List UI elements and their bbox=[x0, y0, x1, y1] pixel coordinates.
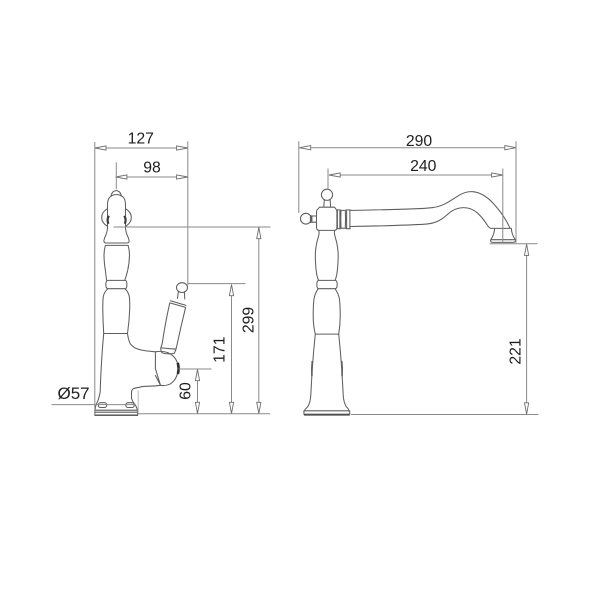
svg-text:290: 290 bbox=[406, 133, 433, 150]
svg-text:Ø57: Ø57 bbox=[58, 384, 90, 403]
svg-text:299: 299 bbox=[240, 307, 257, 334]
svg-text:127: 127 bbox=[128, 130, 154, 147]
svg-text:171: 171 bbox=[211, 336, 228, 363]
svg-text:98: 98 bbox=[143, 159, 161, 176]
svg-text:240: 240 bbox=[410, 158, 437, 175]
svg-text:60: 60 bbox=[177, 382, 194, 400]
svg-text:221: 221 bbox=[507, 338, 524, 365]
